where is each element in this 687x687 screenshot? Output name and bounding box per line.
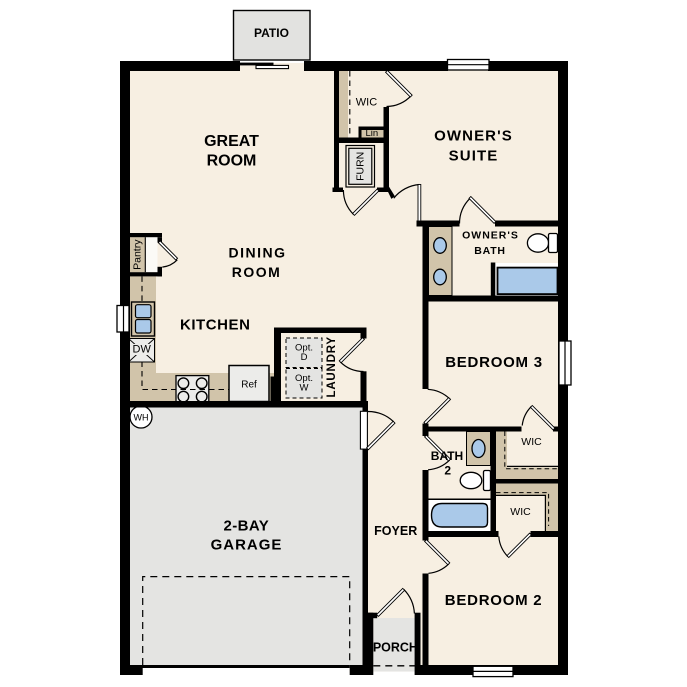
svg-text:OWNER'S: OWNER'S (434, 127, 513, 144)
svg-text:SUITE: SUITE (449, 147, 499, 164)
svg-text:LAUNDRY: LAUNDRY (326, 336, 338, 397)
svg-text:ROOM: ROOM (207, 153, 257, 170)
svg-text:WH: WH (134, 412, 149, 422)
svg-text:ROOM: ROOM (232, 264, 282, 280)
svg-text:KITCHEN: KITCHEN (180, 316, 251, 333)
svg-text:PORCH: PORCH (373, 641, 418, 655)
svg-text:2-BAY: 2-BAY (223, 518, 269, 535)
svg-text:DW: DW (133, 344, 152, 356)
svg-text:WIC: WIC (356, 97, 377, 109)
svg-text:FURN: FURN (354, 152, 366, 181)
svg-text:PATIO: PATIO (254, 26, 289, 40)
svg-text:OWNER'S: OWNER'S (462, 230, 519, 242)
svg-text:GARAGE: GARAGE (211, 537, 283, 554)
svg-text:Ref: Ref (241, 380, 257, 391)
svg-text:2: 2 (444, 464, 451, 478)
svg-text:BEDROOM 3: BEDROOM 3 (445, 354, 543, 371)
svg-text:BATH: BATH (431, 449, 463, 463)
svg-text:Pantry: Pantry (132, 239, 144, 270)
svg-text:BATH: BATH (474, 245, 506, 257)
svg-text:GREAT: GREAT (204, 133, 259, 150)
svg-text:BEDROOM 2: BEDROOM 2 (445, 592, 543, 609)
svg-text:D: D (301, 352, 308, 363)
svg-text:WIC: WIC (510, 506, 531, 518)
svg-text:DINING: DINING (229, 245, 287, 261)
svg-text:WIC: WIC (521, 436, 542, 448)
svg-text:W: W (300, 382, 309, 393)
svg-text:FOYER: FOYER (374, 524, 417, 538)
